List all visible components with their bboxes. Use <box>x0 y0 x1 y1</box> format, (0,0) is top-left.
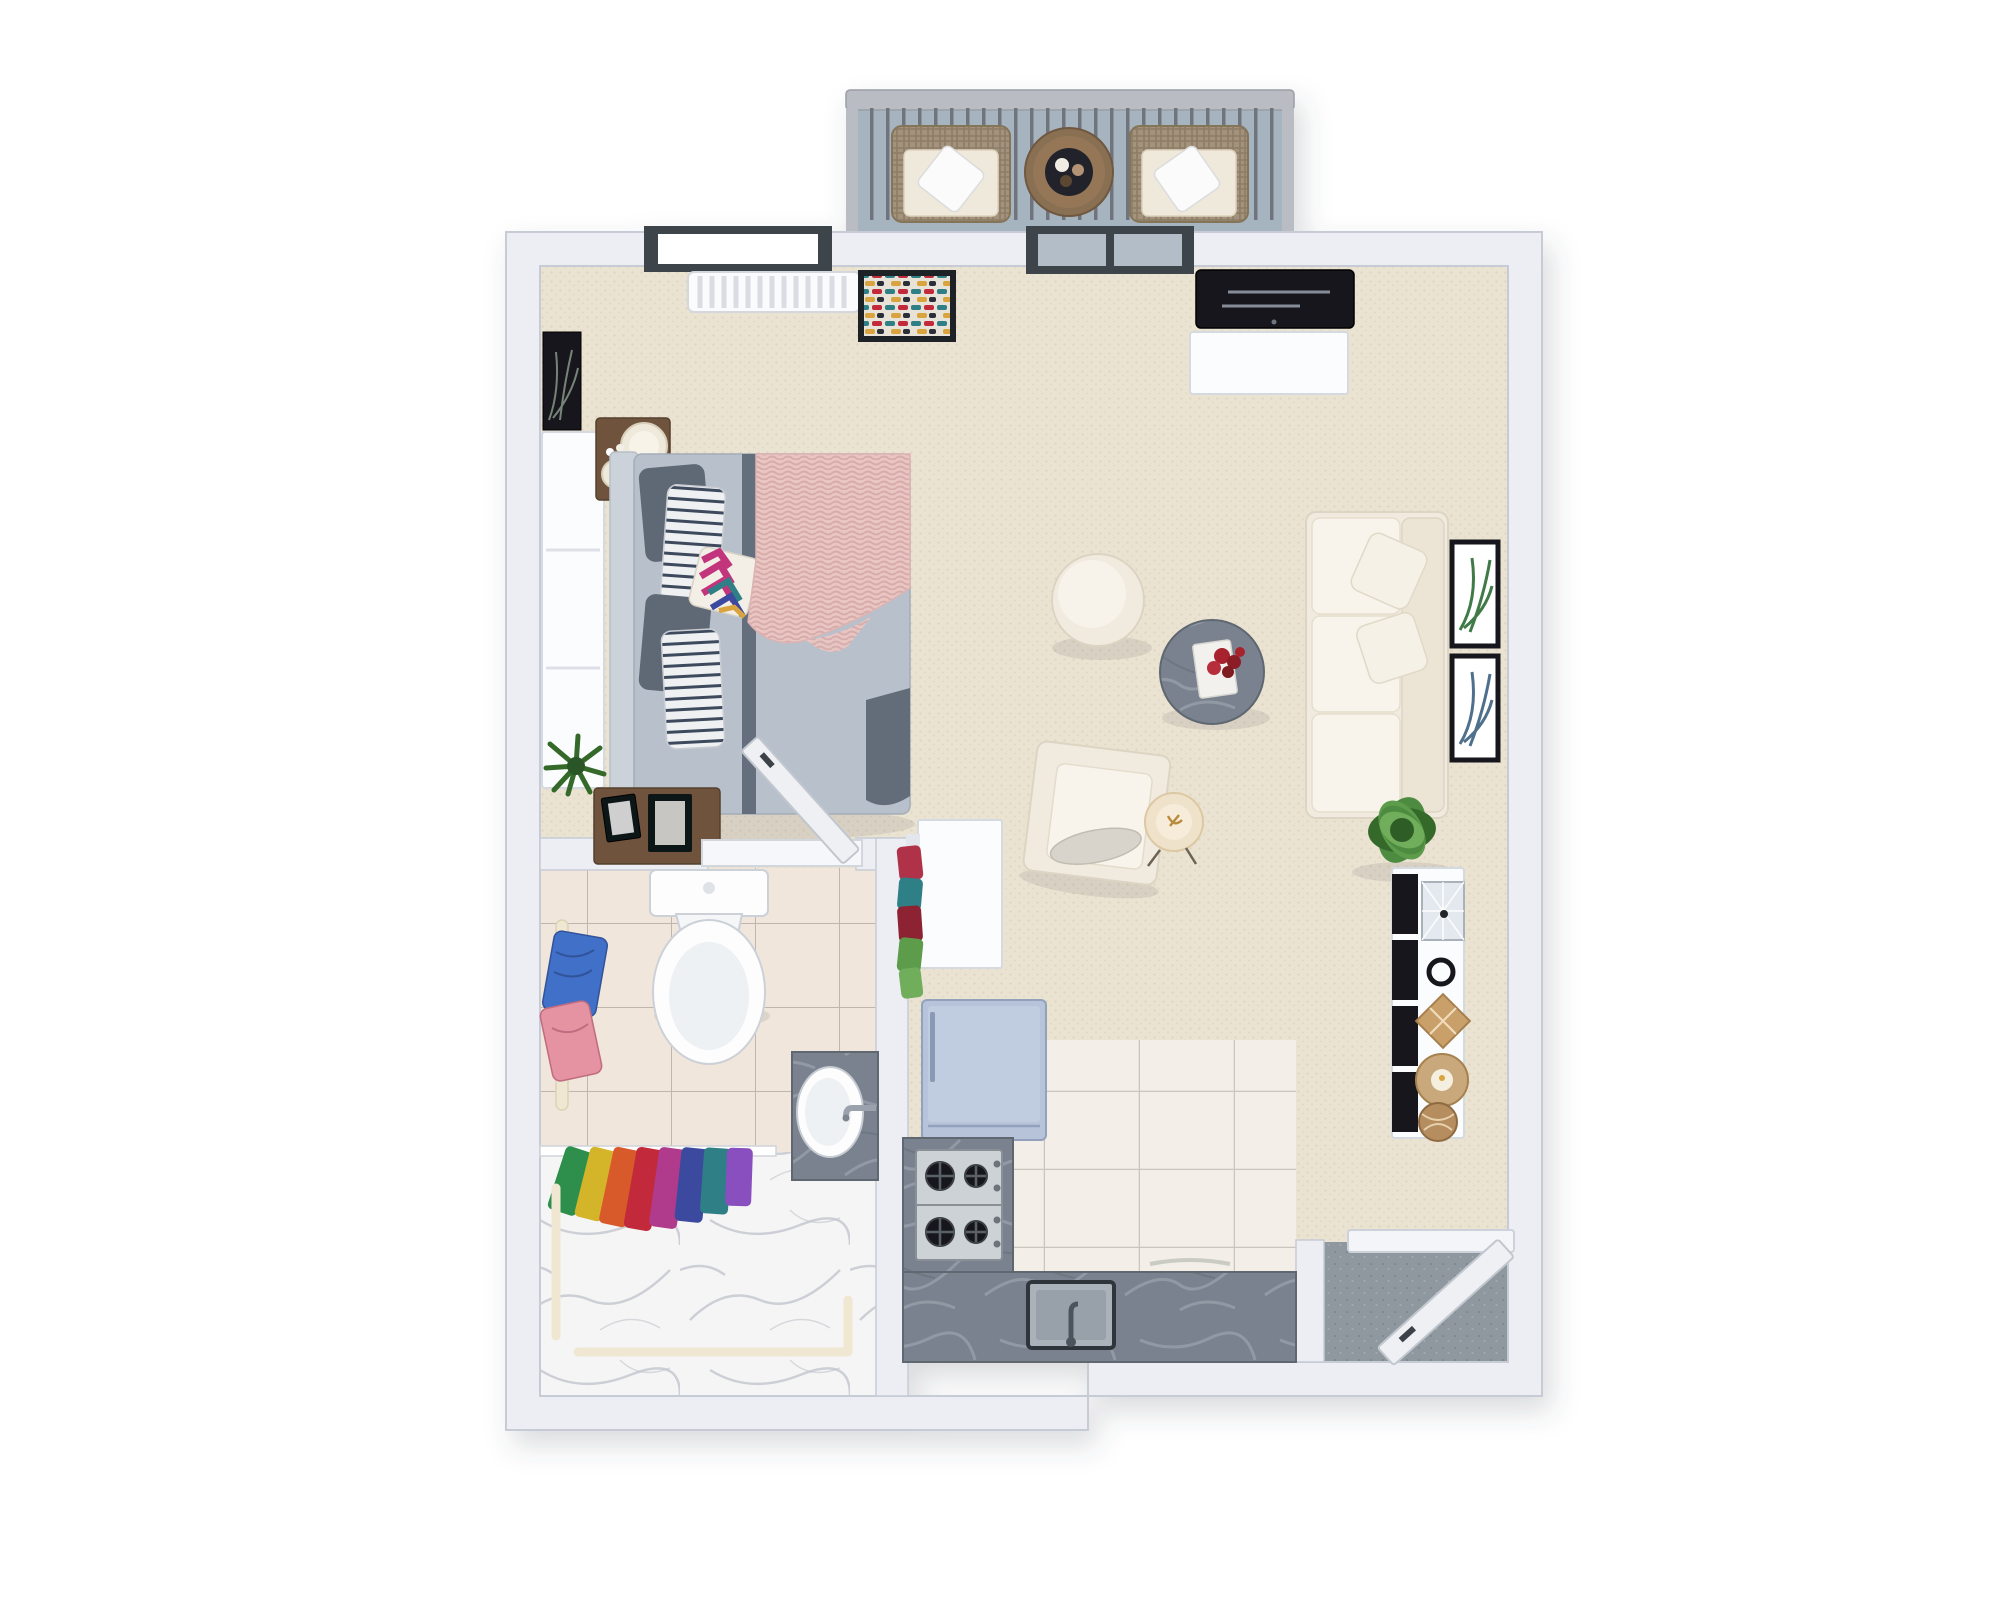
woven-ball <box>1419 1103 1457 1141</box>
glass-terrarium <box>1422 882 1464 940</box>
balcony-side-table <box>1025 128 1113 216</box>
balcony <box>846 90 1294 238</box>
bedroom-window <box>644 226 832 272</box>
seat-cushion <box>1312 714 1400 812</box>
floor-plan-svg: 3D top-down floor plan of a studio apart… <box>0 0 2000 1600</box>
hanging-clothes <box>896 845 923 999</box>
balcony-armchair-right <box>1130 126 1248 222</box>
fridge-handle <box>930 1012 935 1082</box>
floor-plan-render: 3D top-down floor plan of a studio apart… <box>0 0 2000 1600</box>
striped-pillow <box>661 629 725 750</box>
tv-wall <box>1190 270 1354 394</box>
sofa <box>1306 512 1448 818</box>
double-bed <box>610 452 915 840</box>
wardrobe <box>542 432 604 788</box>
console-front-panel <box>1392 940 1418 1000</box>
palm-print-dark <box>543 332 581 430</box>
gas-cooktop <box>916 1150 1002 1260</box>
console-front-panel <box>1392 1072 1418 1132</box>
console-front-panel <box>1392 1006 1418 1066</box>
balcony-armchair-left <box>892 126 1010 222</box>
radiator <box>688 272 860 312</box>
flush-button <box>703 882 715 894</box>
candle-tray <box>1416 1054 1468 1106</box>
console-table <box>1392 868 1470 1141</box>
folded-blanket <box>866 688 910 805</box>
kitchen-floor <box>1012 1040 1296 1272</box>
balcony-railing-left <box>846 108 858 238</box>
apartment <box>506 90 1542 1430</box>
palm-print-green <box>1452 542 1498 646</box>
serving-tray <box>1045 148 1093 196</box>
refrigerator <box>922 1000 1046 1140</box>
kitchen-sink <box>1028 1282 1114 1348</box>
entry-partition-stub <box>1296 1240 1324 1362</box>
balcony-railing-right <box>1282 108 1294 238</box>
palm-print-blue <box>1452 656 1498 760</box>
weave-wall-art <box>858 270 956 342</box>
tv-screen <box>1196 270 1354 328</box>
vanity-sink <box>792 1052 878 1180</box>
media-console <box>1190 332 1348 394</box>
toilet <box>650 870 770 1064</box>
sliding-balcony-door <box>1026 226 1194 274</box>
balcony-railing-top-bar <box>846 90 1294 110</box>
console-front-panel <box>1392 874 1418 934</box>
